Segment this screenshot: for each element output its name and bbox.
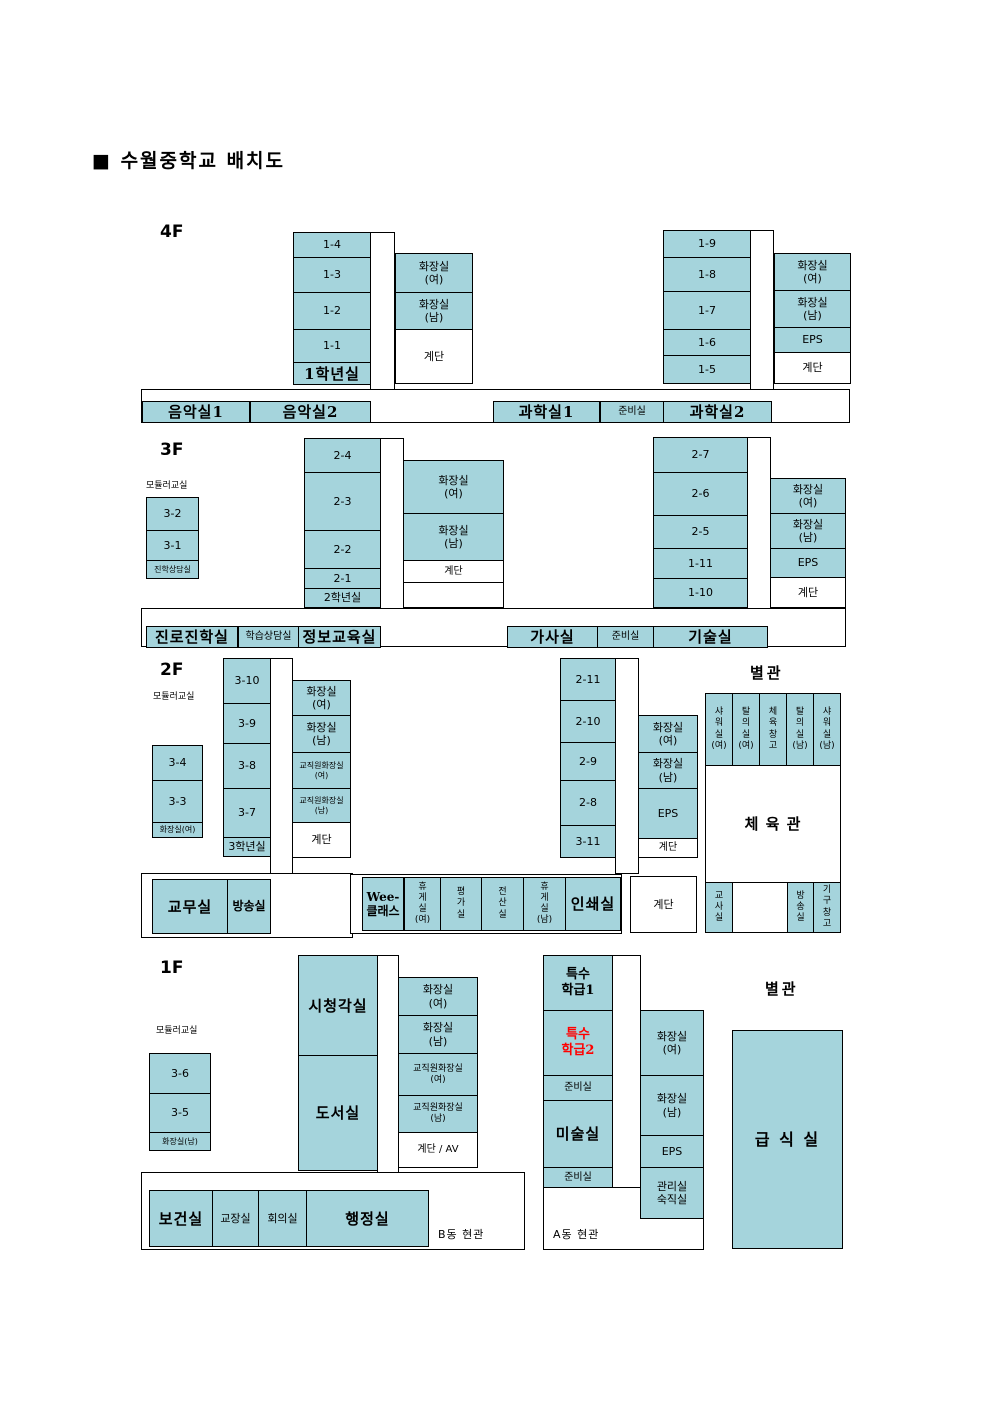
wc-men-1f-left: 화장실 (남) — [398, 1015, 478, 1054]
eps-4f: EPS — [774, 327, 851, 353]
stairs-av-1f: 계단 / AV — [398, 1132, 478, 1168]
room-1-9: 1-9 — [663, 230, 751, 258]
room-1-3: 1-3 — [293, 257, 371, 293]
room-1-6: 1-6 — [663, 329, 751, 356]
modular-label-2f: 모듈러교실 — [153, 689, 194, 702]
room-3-3: 3-3 — [152, 780, 203, 823]
corridor-1f-right — [612, 955, 641, 1188]
room-principal: 교장실 — [212, 1190, 259, 1247]
wc-women-2f-modular: 화장실(여) — [152, 822, 203, 838]
wc-men-3f-right: 화장실 (남) — [770, 513, 846, 549]
room-grade3-office: 3학년실 — [223, 837, 271, 857]
room-locker-men: 탈 의 실 (남) — [786, 693, 814, 766]
room-2-6: 2-6 — [653, 472, 748, 516]
room-special-class1: 특수 학급1 — [543, 955, 613, 1011]
room-3-8: 3-8 — [223, 743, 271, 789]
corridor-3f-right — [747, 437, 771, 609]
room-technology: 기술실 — [653, 626, 768, 648]
corridor-4f-right — [750, 230, 774, 391]
wc-men-1f-modular: 화장실(남) — [149, 1132, 211, 1151]
stairs-3f-left: 계단 — [403, 560, 504, 583]
room-wee-class: Wee- 클래스 — [362, 877, 404, 931]
room-1-4: 1-4 — [293, 232, 371, 258]
wc-men-2f-left: 화장실 (남) — [292, 715, 351, 753]
stairs-4f-left: 계단 — [395, 329, 473, 384]
room-home-economics: 가사실 — [507, 626, 598, 648]
room-prep-1f-upper: 준비실 — [543, 1075, 613, 1101]
wc-women-4f-right: 화장실 (여) — [774, 253, 851, 291]
room-shower-women: 샤 워 실 (여) — [705, 693, 733, 766]
room-study-counsel: 학습상담실 — [238, 626, 299, 648]
room-3-7: 3-7 — [223, 788, 271, 838]
entrance-b-label: B동 현관 — [438, 1226, 484, 1242]
stairs-4f-right: 계단 — [774, 352, 851, 384]
wc-women-1f-left: 화장실 (여) — [398, 977, 478, 1016]
corridor-2f-left — [270, 658, 293, 874]
floor-label-4f: 4F — [160, 222, 183, 242]
room-library: 도서실 — [298, 1055, 378, 1171]
corridor-1f-left — [377, 955, 399, 1187]
annex-label-2f: 별관 — [750, 662, 784, 683]
modular-label-1f: 모듈러교실 — [156, 1023, 197, 1036]
room-equipment-storage: 기 구 창 고 — [813, 882, 841, 933]
room-2-9: 2-9 — [560, 742, 616, 781]
room-counseling: 진학상담실 — [146, 560, 199, 579]
room-computer: 전 산 실 — [481, 877, 524, 931]
room-3-2: 3-2 — [146, 497, 199, 531]
room-meeting: 회의실 — [258, 1190, 307, 1247]
wc-staff-women-1f: 교직원화장실 (여) — [398, 1053, 478, 1096]
room-art: 미술실 — [543, 1100, 613, 1168]
room-evaluation: 평 가 실 — [440, 877, 482, 931]
wc-women-3f-right: 화장실 (여) — [770, 478, 846, 514]
room-2-1: 2-1 — [304, 568, 381, 589]
corridor-2f-right — [615, 658, 639, 874]
floor-plan-page: ■ 수월중학교 배치도 4F 1-4 1-3 1-2 1-1 1학년실 화장실 … — [0, 0, 992, 1403]
annex-label-1f: 별관 — [765, 978, 799, 999]
room-prep-4f: 준비실 — [600, 401, 664, 423]
modular-label-3f: 모듈러교실 — [146, 478, 187, 491]
room-3-5: 3-5 — [149, 1093, 211, 1133]
floor-label-2f: 2F — [160, 660, 183, 680]
room-1-1: 1-1 — [293, 329, 371, 363]
room-1-8: 1-8 — [663, 257, 751, 292]
room-3-10: 3-10 — [223, 658, 271, 704]
room-2-5: 2-5 — [653, 515, 748, 549]
room-2-7: 2-7 — [653, 437, 748, 473]
wc-women-1f-right: 화장실 (여) — [640, 1010, 704, 1076]
wc-women-3f-left: 화장실 (여) — [403, 460, 504, 514]
room-info-education: 정보교육실 — [298, 626, 381, 648]
entrance-a-label: A동 현관 — [553, 1226, 599, 1242]
room-science1: 과학실1 — [493, 401, 600, 423]
room-3-9: 3-9 — [223, 703, 271, 744]
room-2-8: 2-8 — [560, 780, 616, 826]
room-2-2: 2-2 — [304, 530, 381, 569]
wc-men-3f-left: 화장실 (남) — [403, 513, 504, 561]
room-caretaker: 관리실 숙직실 — [640, 1167, 704, 1219]
room-print: 인쇄실 — [565, 877, 621, 931]
room-prep-1f-lower: 준비실 — [543, 1167, 613, 1188]
wc-staff-men-1f: 교직원화장실 (남) — [398, 1095, 478, 1133]
stairs-2f-left: 계단 — [292, 822, 351, 858]
empty-cell-annex — [732, 882, 788, 933]
wc-women-4f-left: 화장실 (여) — [395, 253, 473, 293]
stairs-2f-bottom: 계단 — [630, 876, 697, 933]
room-2-10: 2-10 — [560, 700, 616, 743]
room-2-11: 2-11 — [560, 658, 616, 701]
room-1-7: 1-7 — [663, 291, 751, 330]
room-teachers-office: 교무실 — [152, 879, 228, 934]
room-gymnasium: 체 육 관 — [705, 765, 841, 883]
room-health: 보건실 — [149, 1190, 213, 1247]
room-audiovisual: 시청각실 — [298, 955, 378, 1056]
room-lounge-men: 휴 게 실 (남) — [523, 877, 566, 931]
room-3-11: 3-11 — [560, 825, 616, 858]
corridor-4f-left — [370, 232, 395, 392]
eps-3f: EPS — [770, 548, 846, 578]
room-teacher-room-annex: 교 사 실 — [705, 882, 733, 933]
room-prep-3f: 준비실 — [597, 626, 654, 648]
room-science2: 과학실2 — [663, 401, 772, 423]
room-broadcast-2f: 방송실 — [227, 879, 271, 934]
empty-area-3f — [403, 582, 504, 608]
stairs-2f-right: 계단 — [638, 838, 698, 858]
room-administration: 행정실 — [306, 1190, 429, 1247]
room-locker-women: 탈 의 실 (여) — [732, 693, 760, 766]
room-shower-men: 샤 워 실 (남) — [813, 693, 841, 766]
room-grade1-office: 1학년실 — [293, 362, 371, 385]
room-2-3: 2-3 — [304, 472, 381, 531]
wc-women-2f-right: 화장실 (여) — [638, 715, 698, 753]
room-1-2: 1-2 — [293, 292, 371, 330]
wc-men-1f-right: 화장실 (남) — [640, 1075, 704, 1136]
room-music2: 음악실2 — [250, 401, 371, 423]
room-career-guidance: 진로진학실 — [146, 626, 238, 648]
page-title: ■ 수월중학교 배치도 — [92, 146, 285, 173]
floor-label-3f: 3F — [160, 440, 183, 460]
room-2-4: 2-4 — [304, 438, 381, 473]
eps-2f: EPS — [638, 788, 698, 839]
room-3-6: 3-6 — [149, 1053, 211, 1094]
room-special-class2: 특수 학급2 — [543, 1010, 613, 1076]
room-grade2-office: 2학년실 — [304, 588, 381, 608]
room-1-10: 1-10 — [653, 578, 748, 608]
eps-1f: EPS — [640, 1135, 704, 1168]
room-3-1: 3-1 — [146, 530, 199, 561]
room-gym-storage: 체 육 창 고 — [759, 693, 787, 766]
wc-women-2f-left: 화장실 (여) — [292, 680, 351, 716]
room-cafeteria: 급 식 실 — [732, 1030, 843, 1249]
room-lounge-women: 휴 게 실 (여) — [404, 877, 441, 931]
room-3-4: 3-4 — [152, 745, 203, 781]
room-broadcast-annex: 방 송 실 — [787, 882, 814, 933]
room-1-5: 1-5 — [663, 355, 751, 384]
wc-staff-women-2f: 교직원화장실 (여) — [292, 752, 351, 789]
wc-men-4f-right: 화장실 (남) — [774, 290, 851, 328]
wc-men-2f-right: 화장실 (남) — [638, 752, 698, 789]
wc-men-4f-left: 화장실 (남) — [395, 292, 473, 330]
floor-label-1f: 1F — [160, 958, 183, 978]
corridor-3f-left — [380, 438, 404, 610]
wc-staff-men-2f: 교직원화장실 (남) — [292, 788, 351, 823]
stairs-3f-right: 계단 — [770, 577, 846, 608]
room-music1: 음악실1 — [142, 401, 250, 423]
room-1-11: 1-11 — [653, 548, 748, 579]
